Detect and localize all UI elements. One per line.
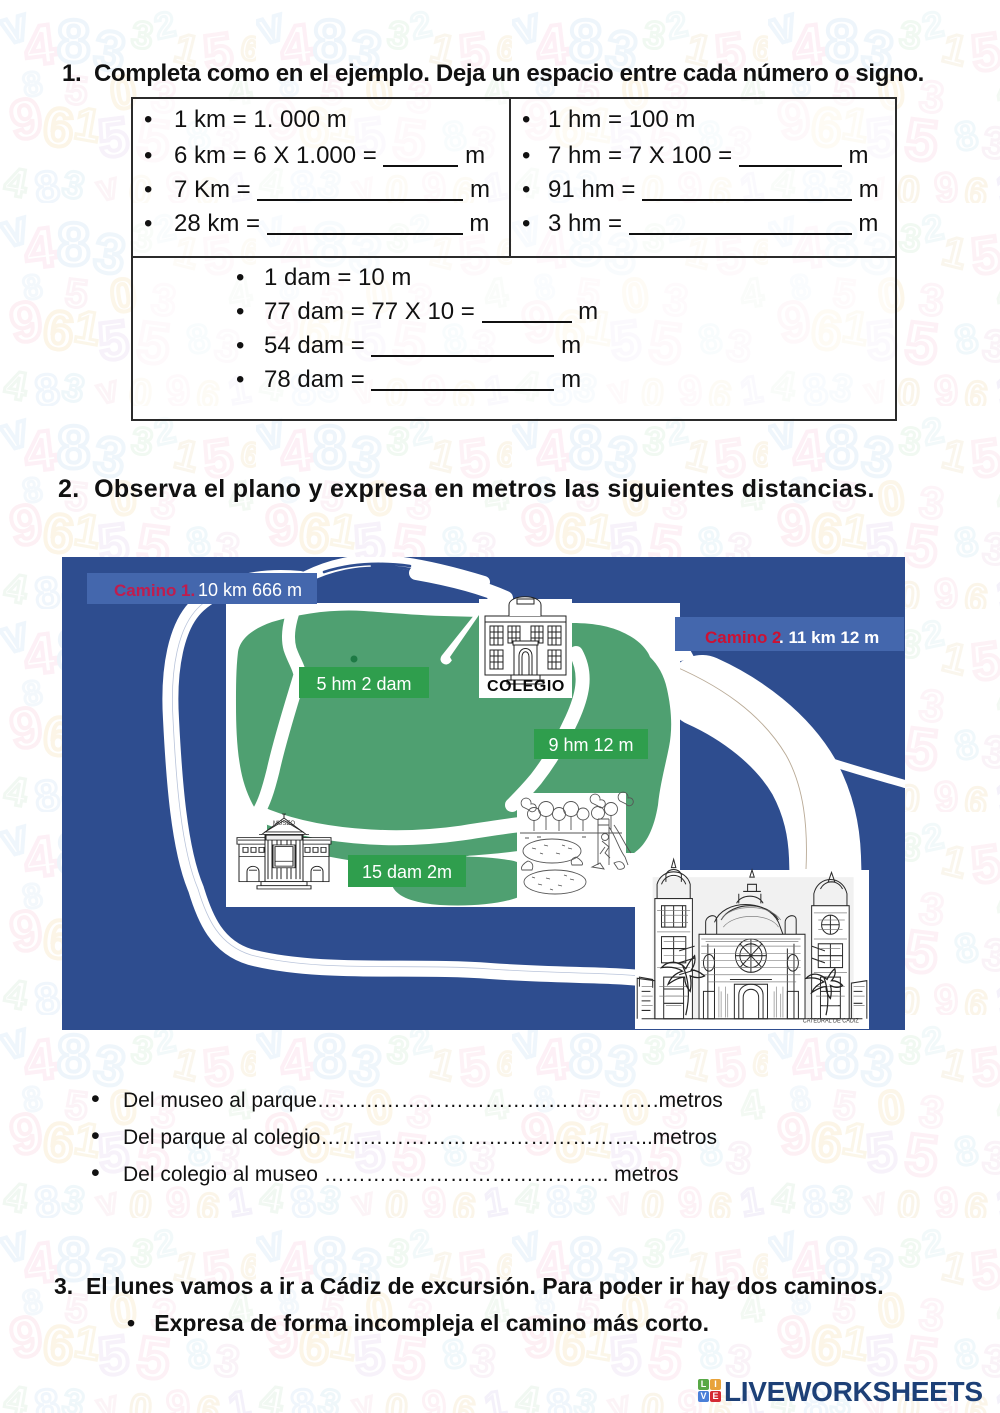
svg-text:15 dam 2m: 15 dam 2m	[362, 862, 452, 882]
svg-text:5 hm 2 dam: 5 hm 2 dam	[316, 674, 411, 694]
svg-text:Camino 2: Camino 2	[705, 628, 782, 647]
svg-text:. 11 km 12 m: . 11 km 12 m	[779, 628, 879, 647]
svg-text:MUSEO: MUSEO	[273, 821, 295, 827]
svg-text:CATEDRAL DE CADIZ: CATEDRAL DE CADIZ	[803, 1018, 859, 1024]
svg-text:Camino 1.: Camino 1.	[114, 581, 195, 600]
svg-text:COLEGIO: COLEGIO	[487, 678, 565, 695]
svg-text:10 km 666 m: 10 km 666 m	[198, 580, 302, 600]
svg-text:9 hm 12 m: 9 hm 12 m	[548, 735, 633, 755]
